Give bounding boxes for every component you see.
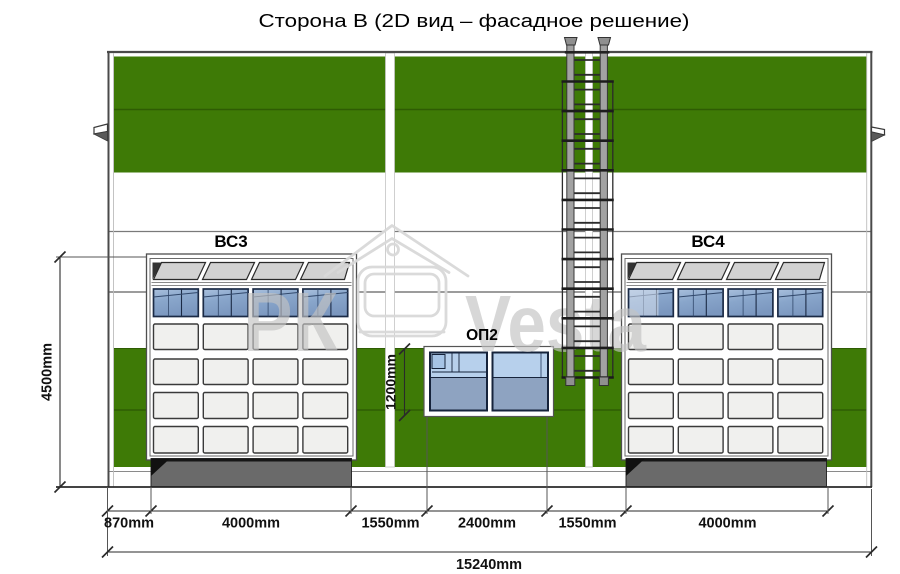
svg-text:4500mm: 4500mm — [40, 343, 56, 401]
svg-text:4000mm: 4000mm — [222, 516, 280, 532]
svg-text:1200mm: 1200mm — [383, 354, 399, 410]
svg-text:2400mm: 2400mm — [458, 516, 516, 532]
svg-text:15240mm: 15240mm — [456, 557, 522, 573]
svg-text:РК: РК — [243, 275, 339, 369]
svg-text:4000mm: 4000mm — [698, 516, 756, 532]
svg-text:ВС3: ВС3 — [214, 232, 247, 251]
svg-text:1550mm: 1550mm — [361, 516, 419, 532]
svg-text:870mm: 870mm — [104, 516, 154, 532]
svg-text:1550mm: 1550mm — [558, 516, 616, 532]
svg-text:Сторона В (2D вид – фасадное р: Сторона В (2D вид – фасадное решение) — [259, 10, 690, 31]
svg-text:Vesta: Vesta — [465, 279, 646, 368]
svg-text:ВС4: ВС4 — [691, 232, 725, 251]
svg-text:ОП2: ОП2 — [466, 327, 498, 344]
